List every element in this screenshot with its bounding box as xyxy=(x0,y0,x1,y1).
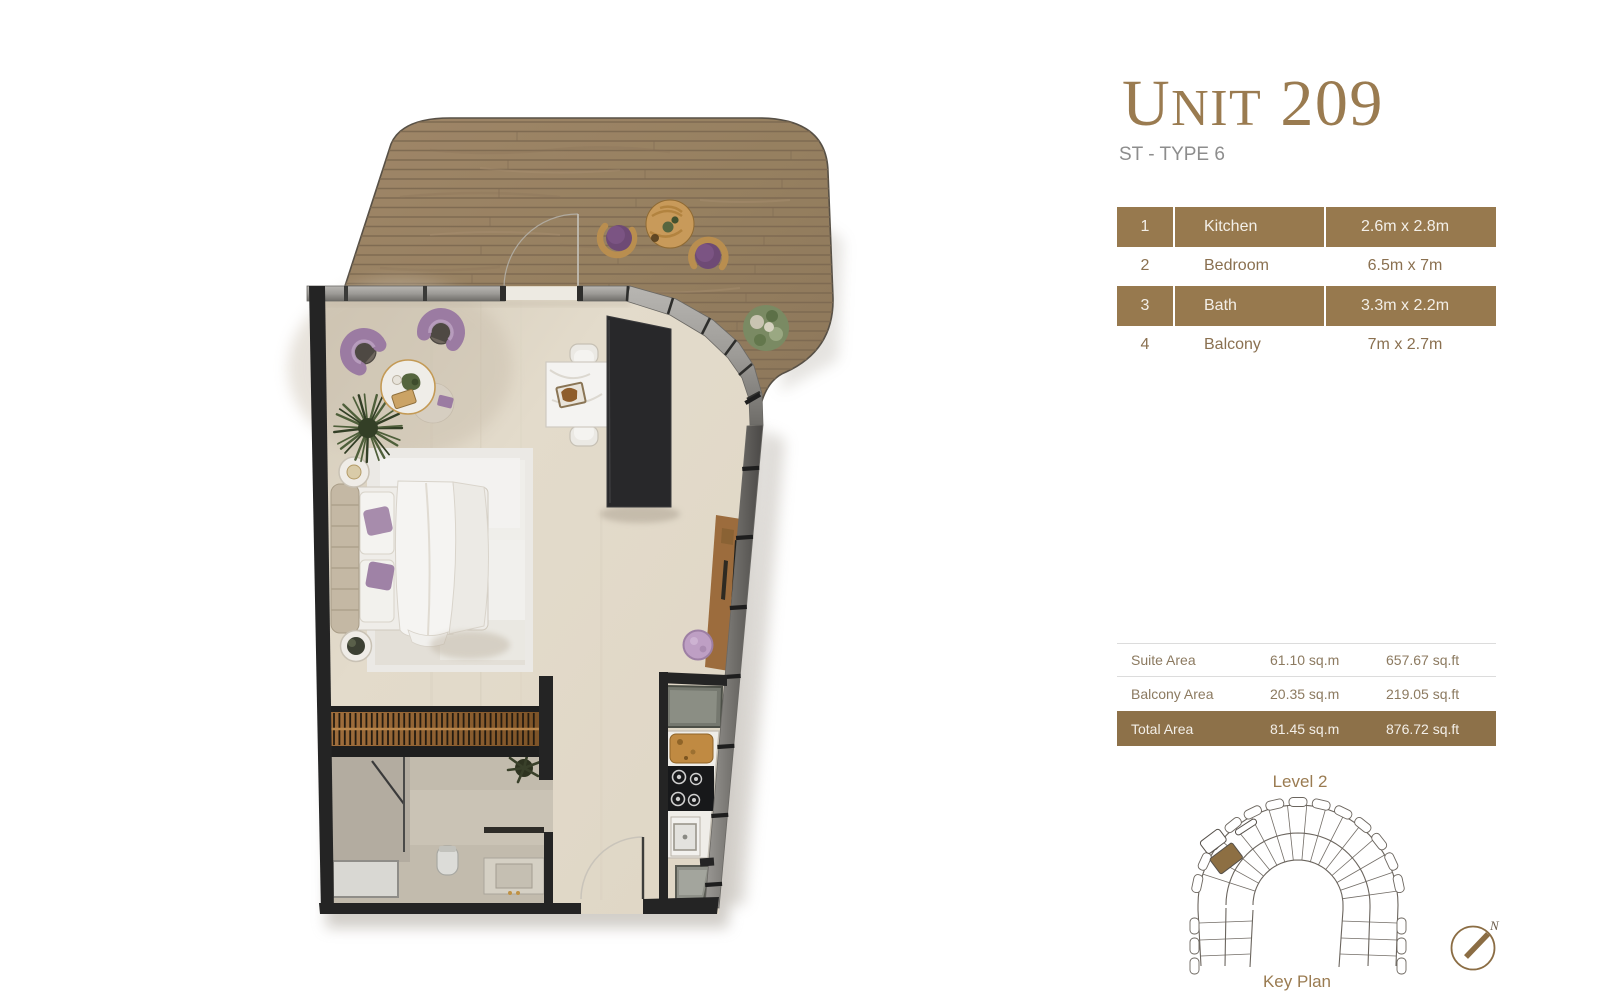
svg-text:N: N xyxy=(1489,918,1500,933)
